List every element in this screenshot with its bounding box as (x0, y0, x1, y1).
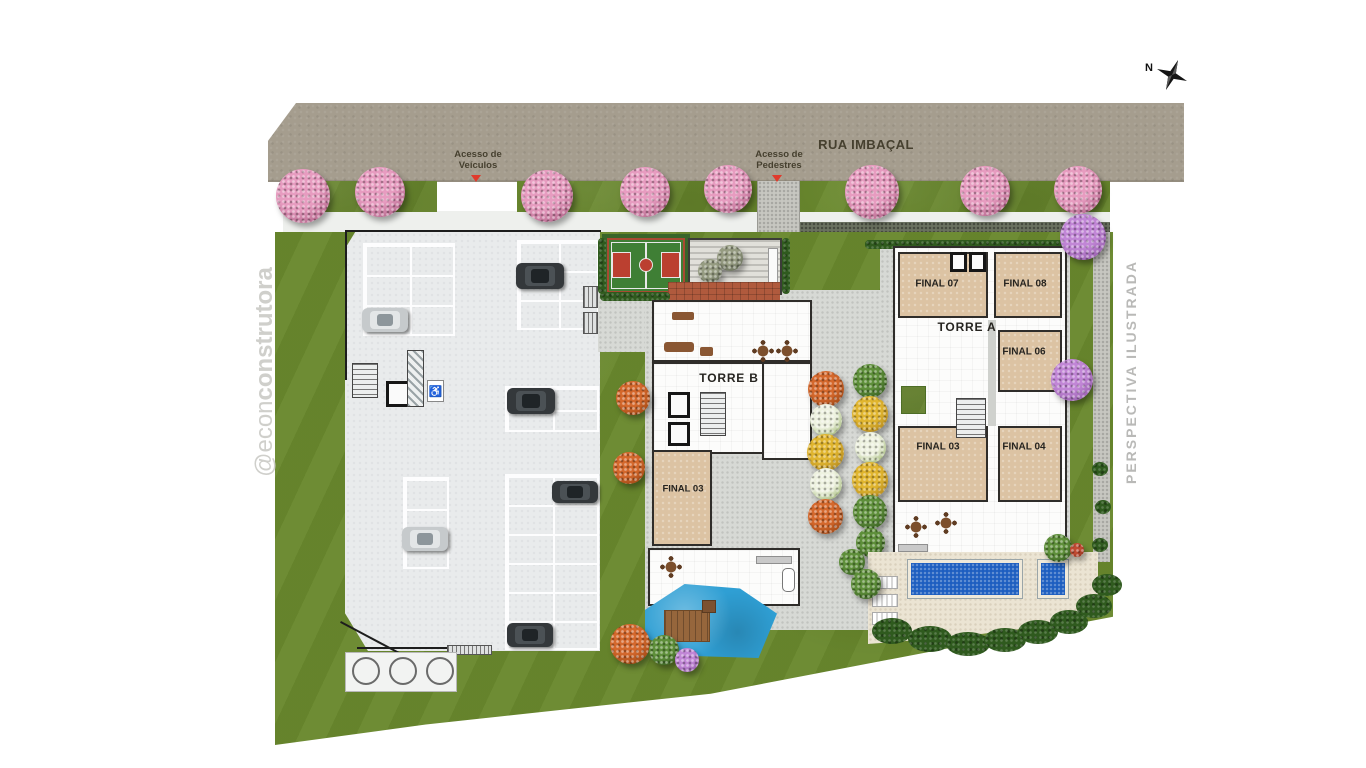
pedestrian-access-marker (772, 175, 782, 182)
accessible-parking-icon: ♿ (429, 385, 443, 398)
torre-a-dining-set-1 (905, 516, 927, 538)
torre-b-block-right (762, 362, 812, 460)
car-3 (507, 388, 555, 414)
hedge-blob-8 (1092, 574, 1122, 596)
utility-circle-2 (389, 657, 417, 685)
parking-edge-top (345, 230, 601, 232)
hedge-blob-7 (1076, 594, 1112, 618)
bottom-bush-purple (675, 648, 699, 672)
hedge-dot-2 (1095, 500, 1111, 514)
torre-b-spa-tub (782, 568, 795, 592)
main-pool (908, 560, 1022, 598)
hedge-dot-1 (1092, 462, 1108, 476)
courtyard-tree-orange-1 (808, 371, 844, 407)
purple-tree-middle (1051, 359, 1093, 401)
pergola-tree-2 (698, 259, 722, 283)
watermark-handle-light: @econ (251, 400, 278, 476)
torre-a-elevator-2 (969, 252, 986, 272)
torre-b-dining-set-1 (752, 340, 774, 362)
torre-b-counter (756, 556, 792, 564)
autumn-tree-strip-2 (613, 452, 645, 484)
watermark-handle-bold: construtora (251, 267, 278, 400)
court-key-right (661, 252, 680, 278)
courtyard-tree-green-1 (853, 364, 887, 398)
torre-b-dining-set-3 (660, 556, 682, 578)
courtyard-tree-white-1 (810, 404, 842, 436)
torre-b-table (672, 312, 694, 320)
hedge-blob-2 (908, 626, 952, 652)
torre-b-label: TORRE B (699, 371, 758, 385)
torre-a-courtyard-garden (901, 386, 926, 414)
car-2 (516, 263, 564, 289)
torre-b-elevator-1 (668, 392, 690, 418)
parking-ramp-hatch (407, 350, 424, 407)
courtyard-tree-white-2 (810, 468, 842, 500)
hedge-dot-3 (1092, 538, 1108, 552)
parking-edge-left (345, 230, 347, 380)
compass-north-label: N (1145, 62, 1153, 74)
accessible-parking-spot: ♿ (427, 380, 444, 402)
court-key-left (612, 252, 631, 278)
street-tree-8 (1054, 166, 1102, 214)
car-4 (552, 481, 598, 503)
torre-a-dining-set-2 (935, 512, 957, 534)
hedge-left-of-court (598, 238, 606, 294)
autumn-tree-bottom (610, 624, 650, 664)
vehicle-access-marker (471, 175, 481, 182)
street-name-label: RUA IMBAÇAL (806, 137, 926, 152)
pedestrian-access-label: Acesso de Pedestres (746, 149, 812, 172)
torre-b-final-03-label: FINAL 03 (662, 484, 703, 495)
court-center-circle (639, 258, 653, 272)
street-tree-3 (521, 170, 573, 222)
hedge-blob-1 (872, 618, 912, 644)
small-pool (1038, 560, 1068, 598)
street-tree-4 (620, 167, 670, 217)
pergola-bench (768, 248, 778, 284)
purple-tree-top (1060, 214, 1106, 260)
hedge-right-of-pergola (782, 238, 790, 294)
torre-a-final-03-label: FINAL 03 (916, 442, 959, 453)
poolside-tree-2 (851, 569, 881, 599)
courtyard-tree-yellow-2 (852, 396, 888, 432)
car-6 (507, 623, 553, 647)
car-1 (362, 308, 408, 332)
utility-circle-3 (426, 657, 454, 685)
sun-lounger-2 (872, 594, 898, 607)
torre-a-final-08-label: FINAL 08 (1003, 279, 1046, 290)
torre-a-counter (898, 544, 928, 552)
torre-a-elevator-1 (950, 252, 967, 272)
utility-circle-1 (352, 657, 380, 685)
autumn-tree-strip-1 (616, 381, 650, 415)
vehicle-access-label: Acesso de Veículos (445, 149, 511, 172)
street-tree-5 (704, 165, 752, 213)
courtyard-tree-yellow-3 (852, 462, 888, 498)
compass-star-icon (1150, 53, 1194, 97)
torre-b-elevator-2 (668, 422, 690, 446)
torre-a-label: TORRE A (938, 320, 997, 334)
parking-grate-2 (583, 312, 598, 334)
perspective-note: PERSPECTIVA ILUSTRADA (1121, 242, 1141, 502)
torre-a-unit-final-04 (998, 426, 1062, 502)
hedge-blob-3 (946, 632, 990, 656)
street-tree-2 (355, 167, 405, 217)
compass: N (1143, 55, 1195, 97)
torre-a-stairs (956, 398, 986, 438)
parking-stairs (352, 363, 378, 398)
torre-a-corridor (988, 320, 996, 426)
street-tree-6 (845, 165, 899, 219)
parking-grate-1 (583, 286, 598, 308)
courtyard-tree-yellow-1 (807, 434, 844, 471)
torre-b-unit-final-03 (652, 450, 712, 546)
torre-b-armchair (700, 347, 713, 356)
torre-a-final-06-label: FINAL 06 (1002, 347, 1045, 358)
street-tree-1 (276, 169, 330, 223)
courtyard-tree-white-3 (855, 432, 886, 463)
courtyard-tree-orange-2 (808, 499, 843, 534)
car-5 (402, 527, 448, 551)
site-plan: ♿ (0, 0, 1366, 768)
torre-b-sofa (664, 342, 694, 352)
torre-b-stairs (700, 392, 726, 436)
torre-a-final-04-label: FINAL 04 (1002, 442, 1045, 453)
courtyard-tree-green-2 (853, 495, 887, 529)
right-bush-red (1070, 543, 1084, 557)
right-bush-green (1044, 534, 1072, 562)
torre-a-final-07-label: FINAL 07 (915, 279, 958, 290)
playground-tower (702, 600, 716, 613)
watermark: @econconstrutora (250, 222, 280, 522)
parking-stalls-e (403, 477, 449, 569)
torre-b-dining-set-2 (776, 340, 798, 362)
street-tree-7 (960, 166, 1010, 216)
